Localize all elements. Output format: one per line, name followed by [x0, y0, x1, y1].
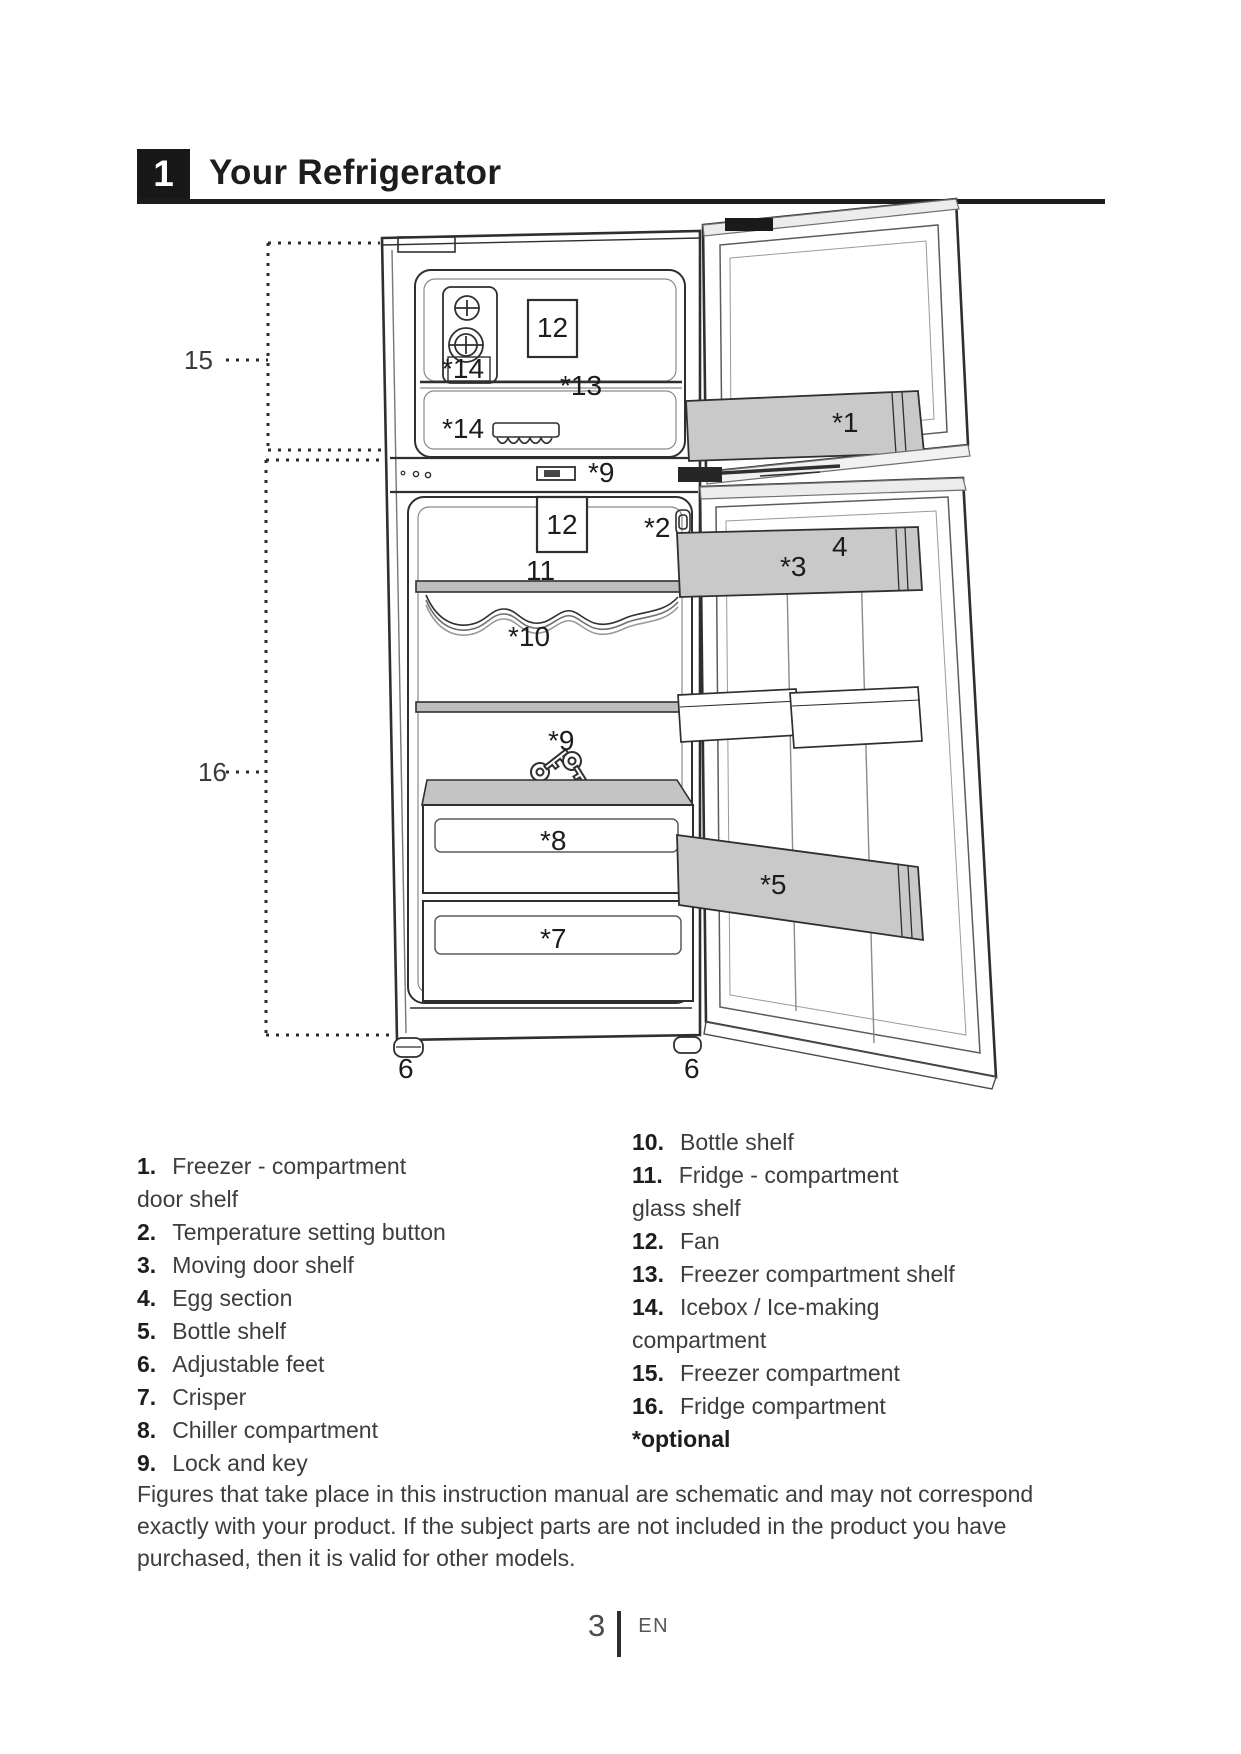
legend-item-number: 15. [632, 1360, 664, 1386]
legend-item-number: 11. [632, 1162, 663, 1188]
legend-item-number: 3. [137, 1252, 156, 1278]
middle-shelf [416, 702, 693, 712]
legend-item-number: 7. [137, 1384, 156, 1410]
label-wire-bottle-shelf: *10 [508, 621, 550, 653]
legend-item-text: Adjustable feet [172, 1351, 324, 1377]
label-foot-left: 6 [398, 1053, 414, 1085]
label-freezer-fan: 12 [528, 312, 577, 344]
label-chiller: *8 [540, 825, 566, 857]
legend-item-text: Fridge compartment [680, 1393, 886, 1419]
legend-item-text: Moving door shelf [172, 1252, 354, 1278]
legend-item-text: Crisper [172, 1384, 246, 1410]
egg-trays [678, 687, 922, 748]
label-crisper: *7 [540, 923, 566, 955]
legend-item-text-wrap: door shelf [137, 1183, 507, 1216]
page-footer: 3 EN [588, 1608, 669, 1657]
legend-item: 6.Adjustable feet [137, 1348, 507, 1381]
legend-item-text-wrap: glass shelf [632, 1192, 972, 1225]
legend-item: 1.Freezer - compartment door shelf [137, 1150, 507, 1216]
legend-item: 14.Icebox / Ice-making compartment [632, 1291, 972, 1357]
label-egg-section: 4 [832, 531, 848, 563]
label-moving-door-shelf: *3 [780, 551, 806, 583]
legend-item-text: Fridge - compartment [679, 1162, 899, 1188]
legend-item: 3.Moving door shelf [137, 1249, 507, 1282]
fridge-bracket-16 [226, 460, 398, 1035]
legend-item: 15.Freezer compartment [632, 1357, 972, 1390]
legend-item: 12.Fan [632, 1225, 972, 1258]
label-door-bottle-shelf: *5 [760, 869, 786, 901]
footer-divider [617, 1611, 621, 1657]
label-temperature-button: *2 [644, 512, 670, 544]
legend-item-number: 1. [137, 1153, 156, 1179]
legend-item-number: 13. [632, 1261, 664, 1287]
schematic-disclaimer: Figures that take place in this instruct… [137, 1478, 1057, 1574]
legend-item-number: 10. [632, 1129, 664, 1155]
legend-item-text: Icebox / Ice-making [680, 1294, 879, 1320]
label-lock-and-key: *9 [548, 725, 574, 757]
legend-item-text: Chiller compartment [172, 1417, 378, 1443]
legend-item-text: Bottle shelf [680, 1129, 794, 1155]
top-hinge-icon [725, 218, 773, 231]
legend-item-text: Freezer compartment [680, 1360, 900, 1386]
label-icebox-upper: *14 [442, 353, 484, 385]
freezer-door-shelf [686, 391, 924, 461]
label-fridge-compartment: 16 [198, 757, 227, 788]
legend-item-number: 5. [137, 1318, 156, 1344]
legend-item-number: 9. [137, 1450, 156, 1476]
legend-item-text-wrap: compartment [632, 1324, 972, 1357]
freezer-bracket-15 [226, 243, 388, 450]
fridge-door [677, 478, 996, 1089]
legend-item-text: Freezer compartment shelf [680, 1261, 955, 1287]
legend-item: 11.Fridge - compartment glass shelf [632, 1159, 972, 1225]
label-freezer-door-shelf: *1 [832, 407, 858, 439]
legend-item: 2.Temperature setting button [137, 1216, 507, 1249]
legend-item: 9.Lock and key [137, 1447, 507, 1480]
legend-item-text: Temperature setting button [172, 1219, 446, 1245]
legend-item: 10.Bottle shelf [632, 1126, 972, 1159]
legend-item: 5.Bottle shelf [137, 1315, 507, 1348]
legend-item: 13.Freezer compartment shelf [632, 1258, 972, 1291]
chiller-top [422, 780, 693, 805]
label-freezer-shelf: *13 [560, 370, 602, 402]
label-foot-right: 6 [684, 1053, 700, 1085]
legend-item-number: 4. [137, 1285, 156, 1311]
legend-item-number: 12. [632, 1228, 664, 1254]
legend-item-text: Egg section [172, 1285, 292, 1311]
legend-item-number: 6. [137, 1351, 156, 1377]
page-number: 3 [588, 1608, 605, 1644]
legend-item-number: 14. [632, 1294, 664, 1320]
legend-item-text: Freezer - compartment [172, 1153, 406, 1179]
legend-item: 8.Chiller compartment [137, 1414, 507, 1447]
legend-item: 16.Fridge compartment [632, 1390, 972, 1423]
label-lock: *9 [588, 457, 614, 489]
legend-item: 4.Egg section [137, 1282, 507, 1315]
optional-note: *optional [632, 1423, 972, 1456]
label-freezer-compartment: 15 [184, 345, 213, 376]
label-glass-shelf: 11 [526, 555, 555, 587]
legend-item: 7.Crisper [137, 1381, 507, 1414]
legend-item-text: Bottle shelf [172, 1318, 286, 1344]
section-number-badge: 1 [137, 149, 190, 199]
freezer-door [686, 199, 970, 484]
legend-column-left: 1.Freezer - compartment door shelf 2.Tem… [137, 1150, 507, 1480]
manual-page: { "page": { "header": {"section_number":… [0, 0, 1241, 1754]
label-fridge-fan: 12 [537, 509, 587, 541]
legend-item-number: 8. [137, 1417, 156, 1443]
language-code: EN [638, 1615, 669, 1638]
page-title: Your Refrigerator [209, 153, 501, 193]
label-icebox-lower: *14 [442, 413, 484, 445]
legend-item-text: Fan [680, 1228, 720, 1254]
refrigerator-diagram: 15 16 12 *14 *13 *14 *1 *9 12 *2 4 *3 11… [120, 195, 1020, 1100]
legend-item-number: 16. [632, 1393, 664, 1419]
legend-column-right: 10.Bottle shelf 11.Fridge - compartment … [632, 1126, 972, 1456]
legend-item-text: Lock and key [172, 1450, 308, 1476]
legend-item-number: 2. [137, 1219, 156, 1245]
